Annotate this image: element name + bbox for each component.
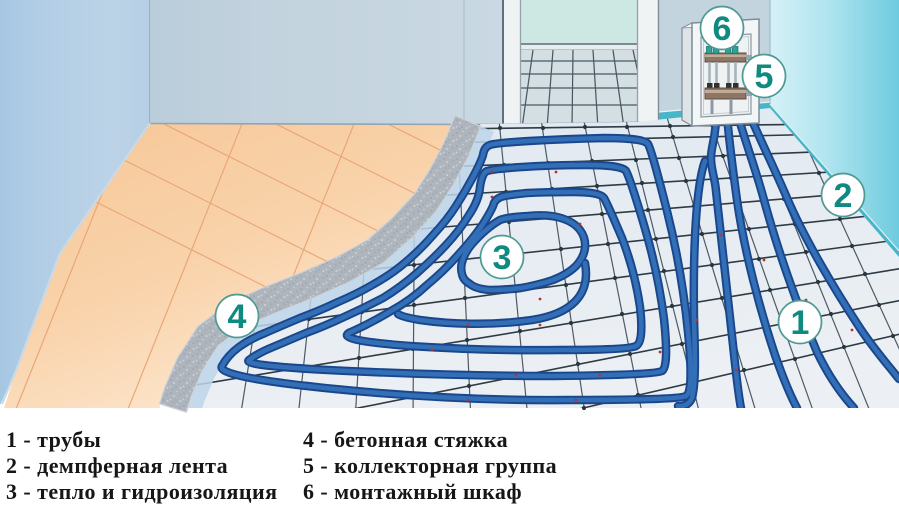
svg-text:2 - демпферная лента: 2 - демпферная лента <box>6 453 228 478</box>
svg-text:5: 5 <box>755 58 774 96</box>
svg-text:2: 2 <box>834 177 853 215</box>
svg-text:4 - бетонная стяжка: 4 - бетонная стяжка <box>303 427 508 452</box>
svg-text:4: 4 <box>228 298 247 336</box>
svg-text:1 - трубы: 1 - трубы <box>6 427 101 452</box>
svg-text:6 - монтажный шкаф: 6 - монтажный шкаф <box>303 479 522 504</box>
svg-text:3 - тепло и гидроизоляция: 3 - тепло и гидроизоляция <box>6 479 277 504</box>
svg-text:5 - коллекторная группа: 5 - коллекторная группа <box>303 453 557 478</box>
svg-text:6: 6 <box>713 10 732 48</box>
svg-text:3: 3 <box>493 239 512 277</box>
svg-text:1: 1 <box>791 304 810 342</box>
